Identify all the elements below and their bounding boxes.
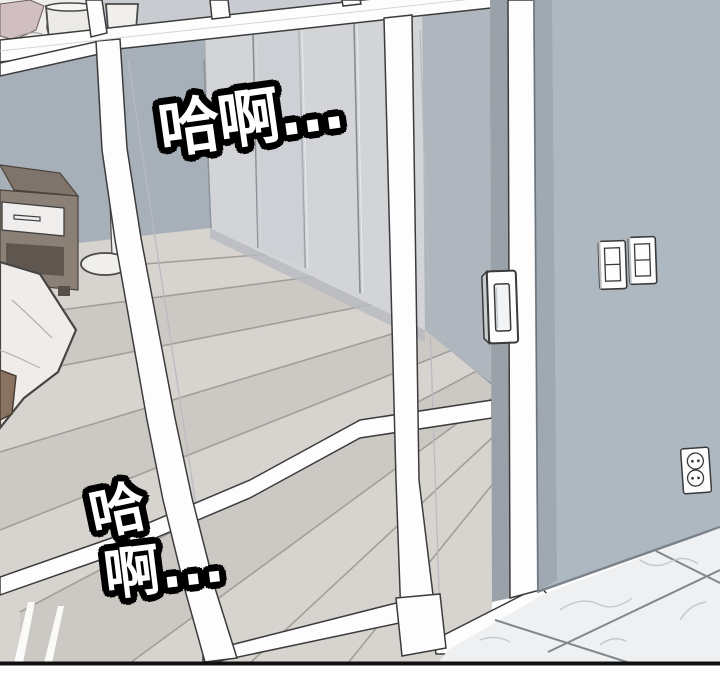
nightstand-drawer: [2, 202, 64, 236]
door-recessed-handle[interactable]: [482, 270, 518, 343]
sliding-door-base: [396, 594, 446, 656]
sfx-text-bottom-line1: 哈: [85, 479, 151, 545]
frame-mullion-upper-mid: [210, 0, 230, 19]
right-wall: [533, 0, 720, 592]
sfx-text-bottom-line2: 啊...: [101, 535, 227, 605]
light-switch-left[interactable]: [598, 239, 627, 290]
room-end-wall: [422, 0, 492, 385]
page-margin: [0, 666, 720, 700]
power-outlet[interactable]: [680, 447, 711, 494]
comic-panel: 哈啊... 哈 啊...: [0, 0, 720, 700]
light-switch-right[interactable]: [628, 235, 657, 285]
